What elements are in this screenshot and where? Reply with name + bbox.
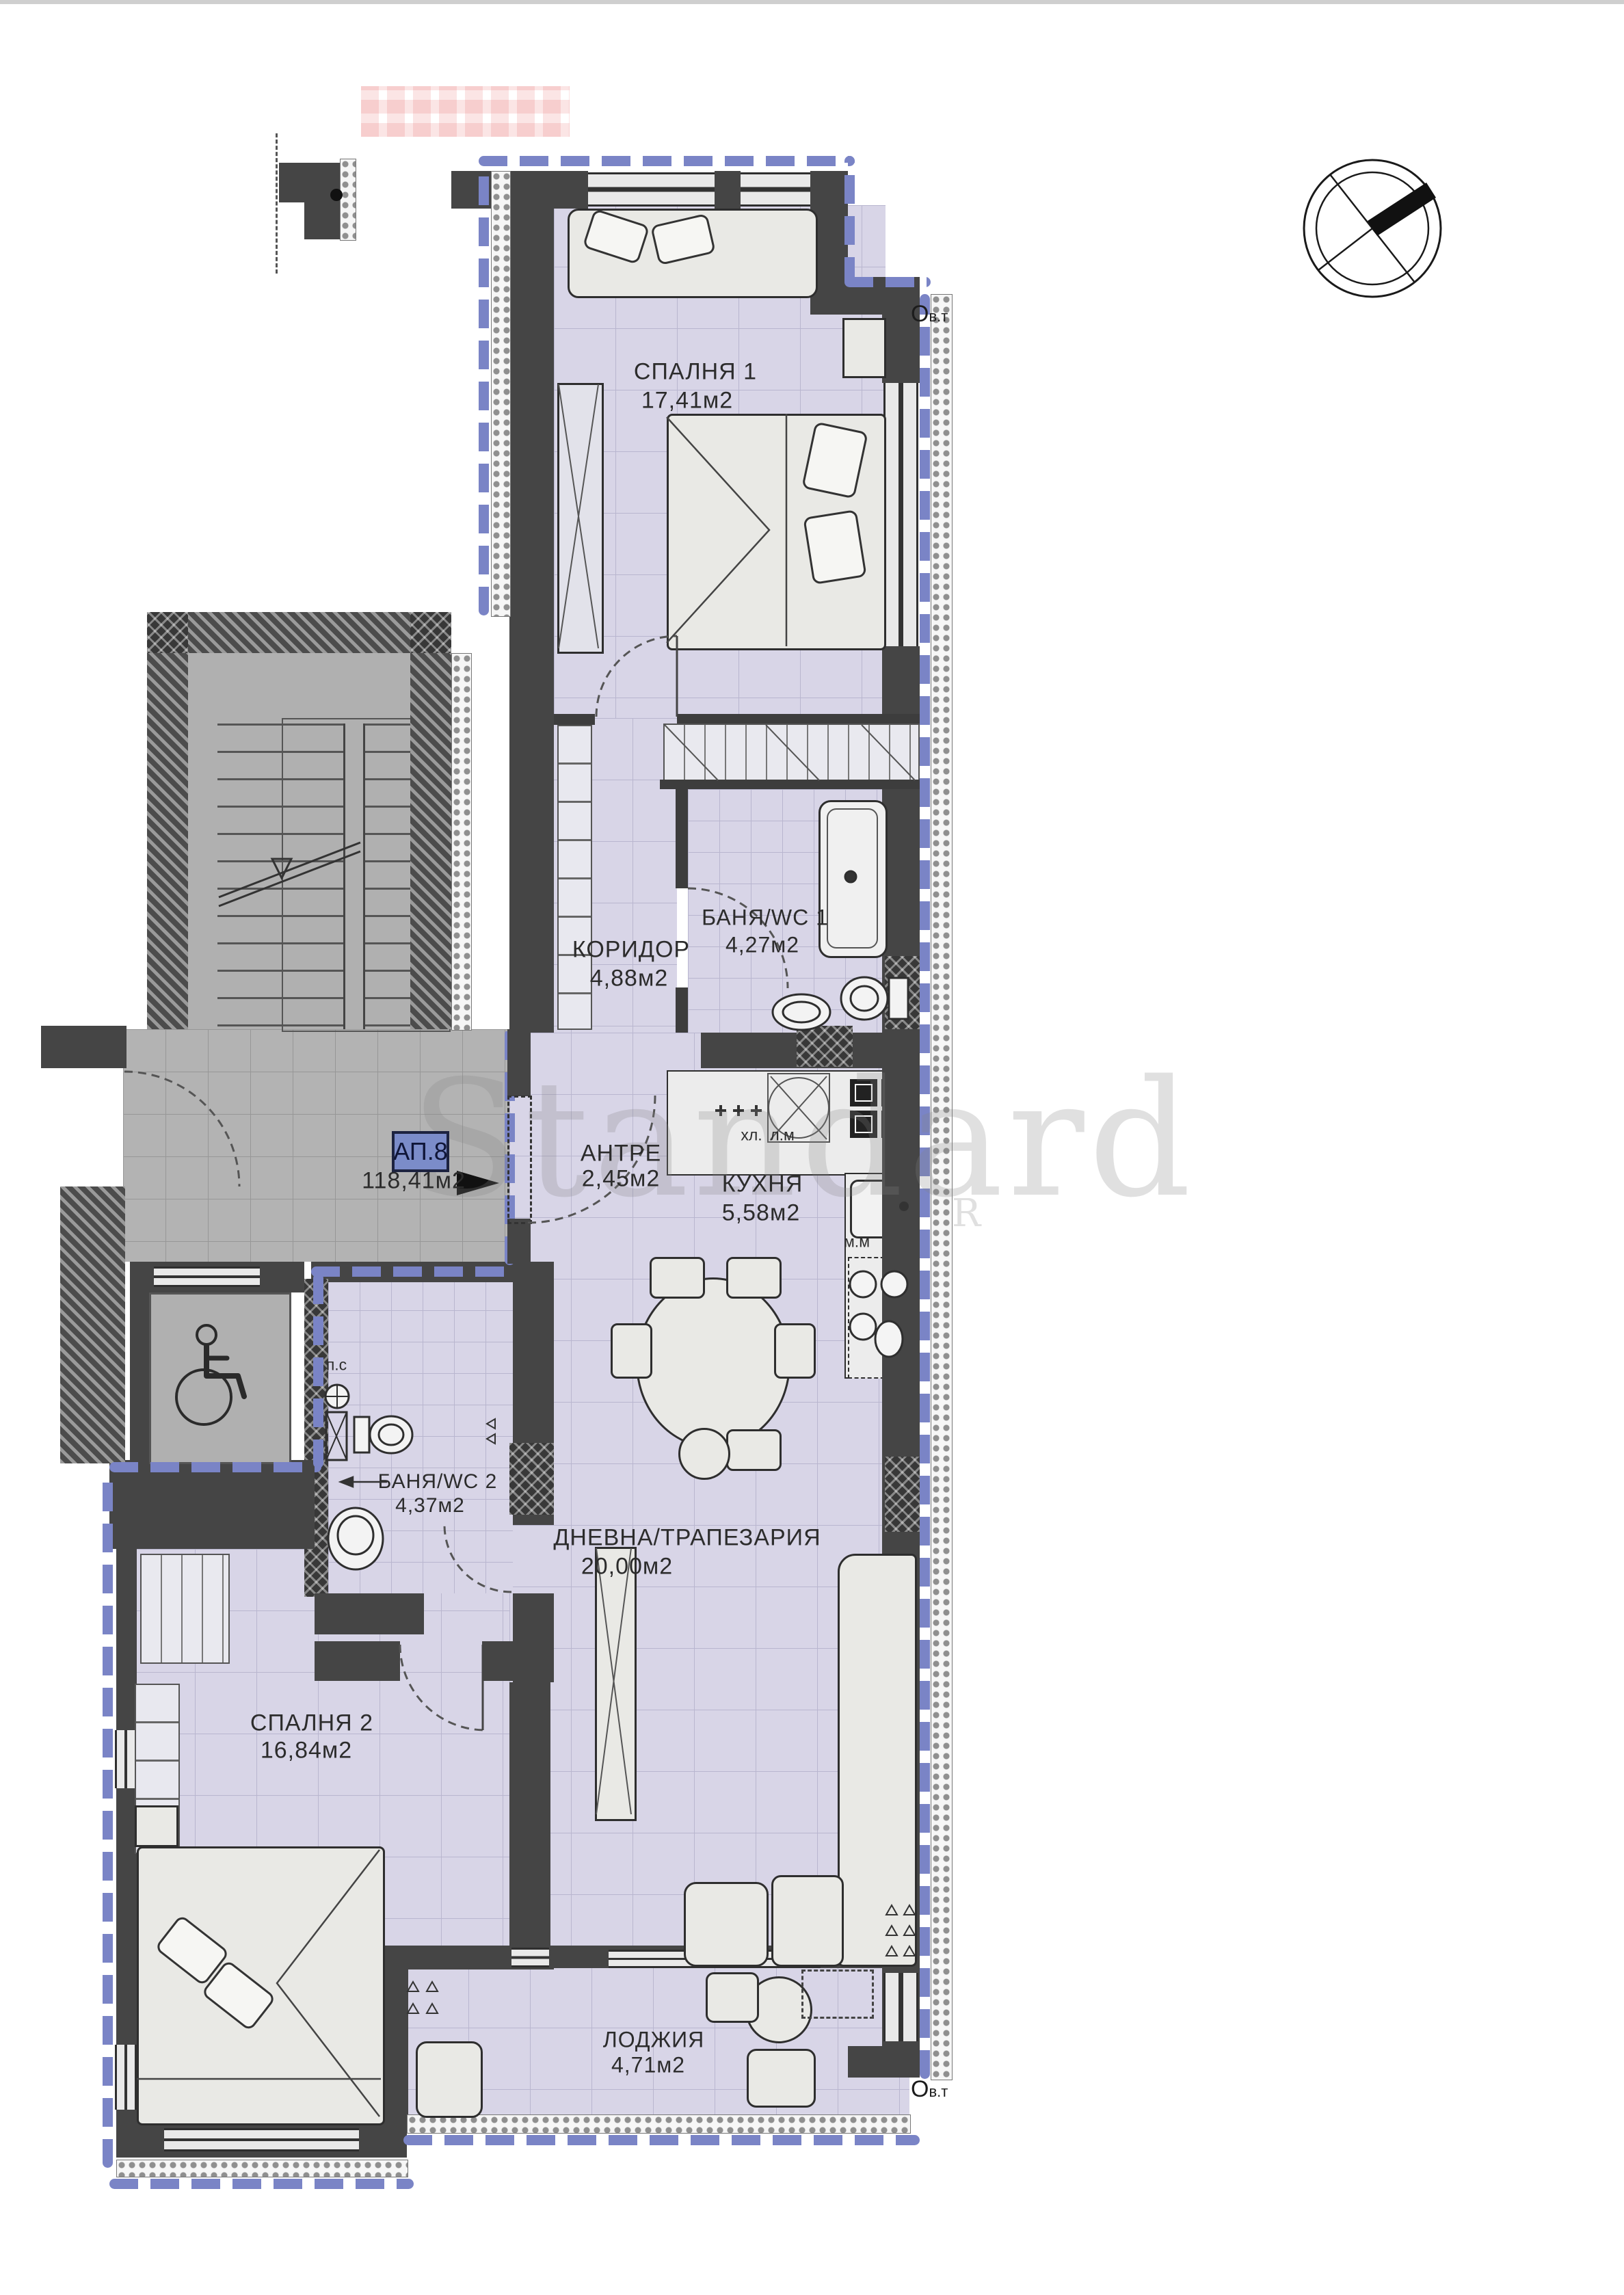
tv-cabinet-x xyxy=(596,1548,631,1814)
apartment-id-badge: АП.8 xyxy=(392,1131,449,1172)
room-label-antre-area: 2,45м2 xyxy=(582,1166,660,1193)
entrance-hall-door-arc xyxy=(124,1072,239,1186)
annotation-ceiling: п.с xyxy=(326,1356,347,1375)
room-label-bedroom1-name: СПАЛНЯ 1 xyxy=(634,359,757,386)
room-label-corridor-area: 4,88м2 xyxy=(590,966,668,992)
shower-drain-icon xyxy=(845,871,856,882)
oven-rings xyxy=(850,1271,907,1357)
room-label-antre-name: АНТРЕ xyxy=(581,1141,661,1167)
annotation-fridge: хл. xyxy=(741,1126,762,1145)
shower-x xyxy=(326,1412,347,1460)
pillow-icon xyxy=(804,511,866,584)
wardrobe-band-slashes xyxy=(665,725,915,780)
annotation-dishwasher: м.м xyxy=(844,1233,870,1251)
room-label-bedroom1-area: 17,41м2 xyxy=(641,388,733,414)
north-compass xyxy=(1304,160,1441,297)
wheelchair-icon xyxy=(176,1325,244,1424)
room-label-bath2-name: БАНЯ/WC 2 xyxy=(378,1470,498,1494)
watermark-text: Standard xyxy=(410,1046,1195,1233)
room-label-bath1-name: БАНЯ/WC 1 xyxy=(702,905,829,931)
pillow-icon xyxy=(652,214,715,264)
toilet2-bowl xyxy=(379,1424,403,1445)
bedroom1-door-arc xyxy=(596,636,677,717)
room-label-bath1-area: 4,27м2 xyxy=(726,933,799,958)
bed-fold-lines xyxy=(137,414,786,2117)
wheelchair-wheel xyxy=(176,1370,231,1424)
bath2-door-arc xyxy=(444,1525,511,1592)
annotation-washer: л.м xyxy=(770,1126,795,1145)
sink-basin xyxy=(783,1002,820,1022)
room-label-bedroom2-area: 16,84м2 xyxy=(261,1738,352,1764)
room-label-loggia-area: 4,71м2 xyxy=(611,2053,685,2078)
toilet-tank xyxy=(889,978,908,1019)
floor-plan-page: Standard R СПАЛНЯ 1 17,41м2 КОРИДОР 4,88… xyxy=(0,0,1624,2295)
stair-direction xyxy=(219,843,360,906)
vent-o: О xyxy=(911,301,929,327)
vent-label-bottom: Ов.т xyxy=(911,2076,948,2103)
oven-ring xyxy=(850,1314,876,1340)
room-label-bedroom2-name: СПАЛНЯ 2 xyxy=(250,1710,373,1737)
vent-sub: в.т xyxy=(929,2083,948,2100)
stair-arrow-line2 xyxy=(219,843,360,897)
pillow-icon xyxy=(803,423,867,498)
bed1-fold xyxy=(667,417,769,643)
room-label-loggia-name: ЛОДЖИЯ xyxy=(603,2028,705,2053)
oven-ring xyxy=(875,1321,903,1357)
bedroom2-door-arc xyxy=(400,1645,485,1730)
wardrobe-x xyxy=(559,384,598,648)
oven-ring xyxy=(881,1271,907,1297)
watermark-partial: R xyxy=(952,1191,981,1236)
vent-label-top: Ов.т xyxy=(911,301,948,328)
sofa-triangles xyxy=(886,1905,915,1956)
room-label-bath2-area: 4,37м2 xyxy=(395,1494,465,1517)
room-label-kitchen-area: 5,58м2 xyxy=(722,1200,800,1227)
pedestal-sink-basin xyxy=(338,1516,373,1554)
vent-sub: в.т xyxy=(929,308,948,325)
vent-o: О xyxy=(911,2076,929,2102)
apartment-total-area: 118,41м2 xyxy=(362,1168,466,1195)
bed2-triangles xyxy=(408,1982,438,2013)
room-label-living-area: 20,00м2 xyxy=(581,1554,673,1580)
toilet2-tank xyxy=(354,1417,369,1452)
wall-triangles xyxy=(487,1419,495,1444)
oven-ring xyxy=(850,1271,876,1297)
wheelchair-head xyxy=(197,1325,216,1344)
pillow-icon xyxy=(583,210,648,264)
toilet-bowl xyxy=(851,986,878,1011)
column-dot xyxy=(330,189,343,201)
bed2-fold xyxy=(277,1850,380,2117)
room-label-corridor-name: КОРИДОР xyxy=(572,937,690,964)
room-label-living-name: ДНЕВНА/ТРАПЕЗАРИЯ xyxy=(553,1525,821,1552)
room-label-kitchen-name: КУХНЯ xyxy=(722,1171,803,1198)
